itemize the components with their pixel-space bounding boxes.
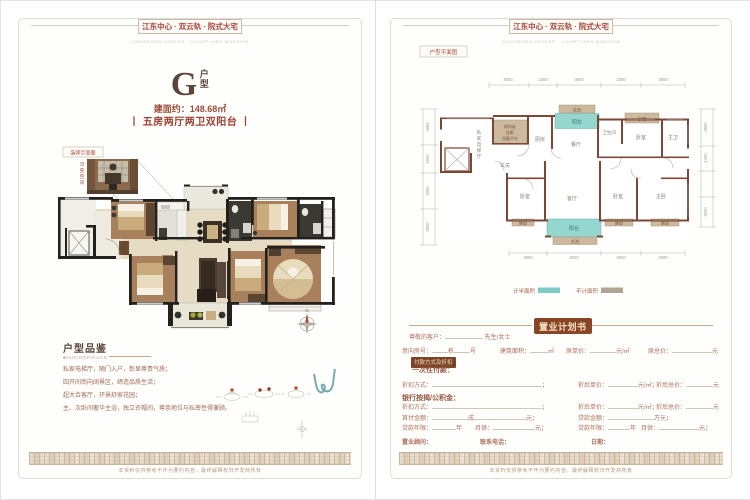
- svg-text:变: 变: [80, 167, 85, 174]
- svg-text:N: N: [305, 308, 308, 313]
- svg-text:空: 空: [80, 173, 85, 180]
- svg-text:间: 间: [80, 179, 85, 186]
- svg-text:装修示意图: 装修示意图: [70, 150, 95, 157]
- svg-text:可: 可: [80, 162, 85, 168]
